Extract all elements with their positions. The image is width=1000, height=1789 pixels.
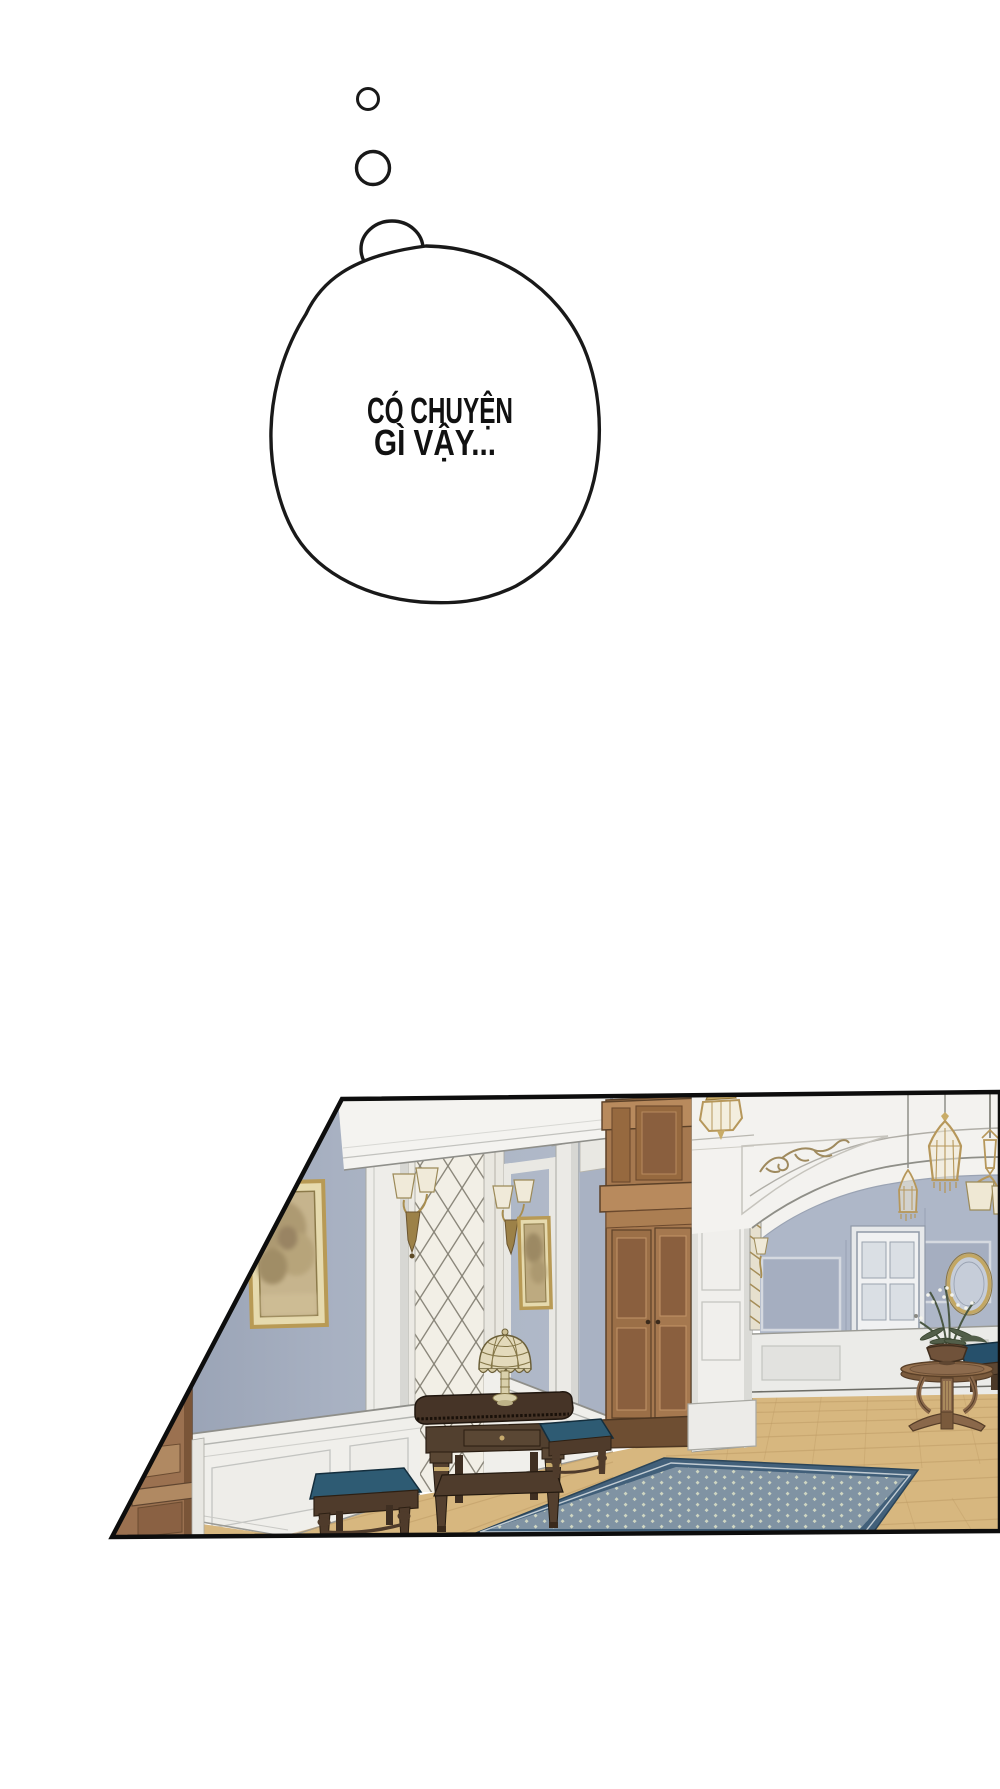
svg-text:GÌ VẬY...: GÌ VẬY... bbox=[374, 421, 496, 463]
